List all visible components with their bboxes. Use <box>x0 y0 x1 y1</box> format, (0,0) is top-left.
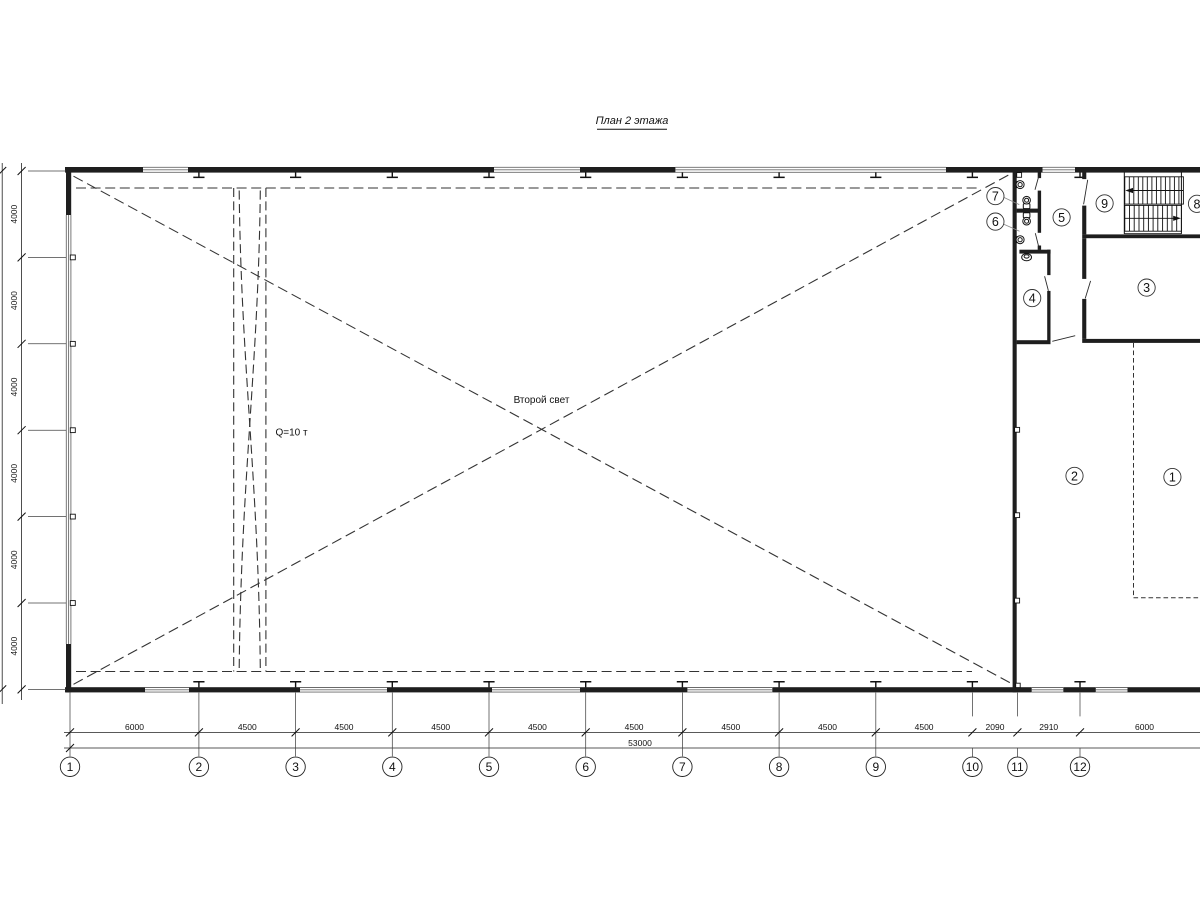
svg-text:3: 3 <box>292 760 299 774</box>
svg-text:2: 2 <box>196 760 203 774</box>
svg-text:12: 12 <box>1073 760 1087 774</box>
svg-text:2090: 2090 <box>986 722 1005 732</box>
svg-text:5: 5 <box>1058 211 1065 225</box>
svg-text:8: 8 <box>1194 197 1200 211</box>
svg-text:6000: 6000 <box>125 722 144 732</box>
svg-text:4000: 4000 <box>9 636 19 655</box>
svg-text:4000: 4000 <box>9 464 19 483</box>
svg-text:4500: 4500 <box>528 722 547 732</box>
svg-text:4500: 4500 <box>625 722 644 732</box>
svg-text:Второй свет: Второй свет <box>514 395 570 406</box>
svg-text:4500: 4500 <box>335 722 354 732</box>
svg-text:4500: 4500 <box>238 722 257 732</box>
svg-text:7: 7 <box>992 190 999 204</box>
svg-text:11: 11 <box>1011 760 1024 774</box>
svg-text:1: 1 <box>1169 471 1176 485</box>
svg-text:5: 5 <box>486 760 493 774</box>
svg-text:4000: 4000 <box>9 291 19 310</box>
svg-text:6: 6 <box>992 215 999 229</box>
svg-text:8: 8 <box>776 760 783 774</box>
svg-text:7: 7 <box>679 760 686 774</box>
svg-text:План 2 этажа: План 2 этажа <box>596 115 669 127</box>
svg-text:4000: 4000 <box>9 550 19 569</box>
svg-text:4: 4 <box>1029 292 1036 306</box>
svg-text:10: 10 <box>966 760 980 774</box>
svg-text:Q=10 т: Q=10 т <box>276 428 309 439</box>
svg-text:4000: 4000 <box>9 204 19 223</box>
svg-text:4500: 4500 <box>431 722 450 732</box>
svg-text:6: 6 <box>582 760 589 774</box>
svg-text:2: 2 <box>1071 469 1078 483</box>
svg-text:4500: 4500 <box>818 722 837 732</box>
svg-text:3: 3 <box>1143 281 1150 295</box>
svg-text:4500: 4500 <box>915 722 934 732</box>
svg-text:9: 9 <box>1101 197 1108 211</box>
svg-text:4500: 4500 <box>721 722 740 732</box>
svg-text:9: 9 <box>872 760 879 774</box>
svg-text:4: 4 <box>389 760 396 774</box>
svg-text:2910: 2910 <box>1039 722 1058 732</box>
svg-text:6000: 6000 <box>1135 722 1154 732</box>
svg-text:53000: 53000 <box>628 738 652 748</box>
svg-text:4000: 4000 <box>9 377 19 396</box>
svg-text:1: 1 <box>67 760 74 774</box>
